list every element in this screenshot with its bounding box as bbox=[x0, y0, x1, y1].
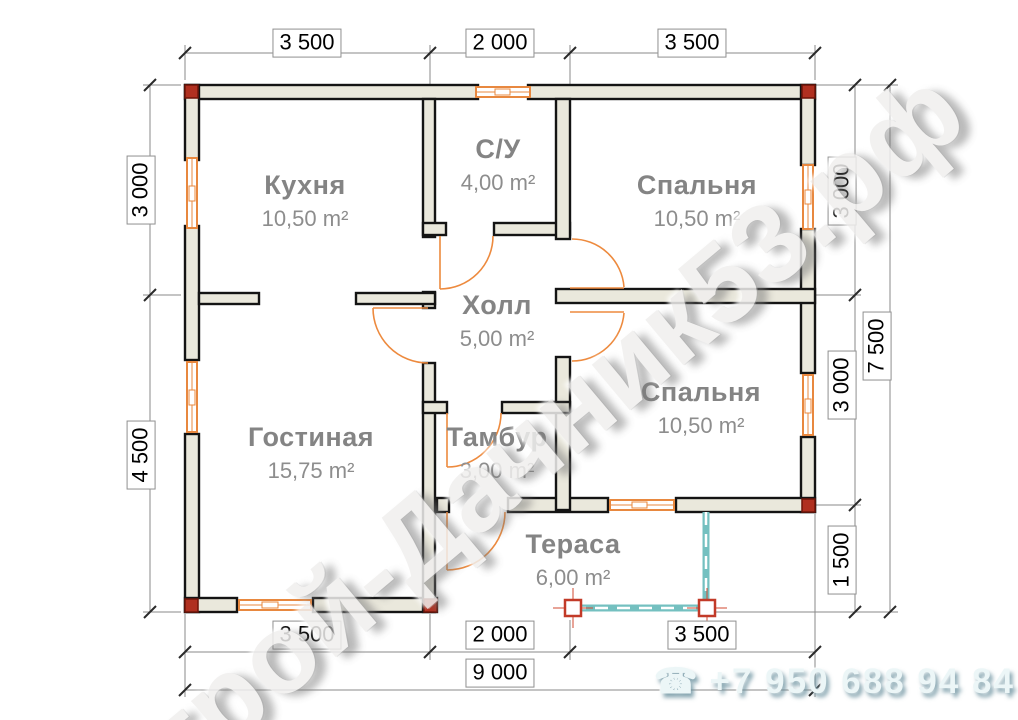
window-kitchen-left bbox=[187, 158, 197, 228]
window-bedroom-bottom-right bbox=[803, 375, 813, 435]
room-area: 10,50 m² bbox=[262, 206, 349, 232]
dim-bottom-3: 3 500 bbox=[667, 621, 736, 650]
window-living-bottom bbox=[239, 600, 311, 610]
room-label-bathroom: С/У 4,00 m² bbox=[461, 134, 536, 196]
dim-right-2: 3 000 bbox=[828, 350, 857, 419]
room-area: 5,00 m² bbox=[460, 326, 535, 352]
dim-bottom-2: 2 000 bbox=[465, 621, 534, 650]
room-name: Тераса bbox=[525, 529, 620, 560]
door-bedroom-bottom bbox=[570, 312, 624, 361]
phone-digits: +7 950 688 94 84 bbox=[710, 662, 1015, 701]
doors-group bbox=[373, 236, 624, 570]
room-label-kitchen: Кухня 10,50 m² bbox=[262, 170, 349, 232]
room-name: С/У bbox=[461, 134, 536, 165]
room-label-living: Гостиная 15,75 m² bbox=[248, 422, 374, 484]
room-area: 15,75 m² bbox=[248, 458, 374, 484]
dim-top-1: 3 500 bbox=[272, 29, 341, 58]
dim-bottom-total: 9 000 bbox=[465, 659, 534, 688]
room-label-terrace: Тераса 6,00 m² bbox=[525, 529, 620, 591]
room-area: 10,50 m² bbox=[641, 413, 761, 439]
dim-left-2: 4 500 bbox=[127, 420, 156, 489]
room-name: Гостиная bbox=[248, 422, 374, 453]
phone-icon: ☎ bbox=[654, 662, 700, 701]
dim-right-total: 7 500 bbox=[863, 311, 892, 380]
room-label-bedroom-bottom: Спальня 10,50 m² bbox=[641, 377, 761, 439]
door-terrace-entry bbox=[447, 512, 505, 570]
room-name: Спальня bbox=[641, 377, 761, 408]
room-name: Холл bbox=[460, 290, 535, 321]
room-name: Спальня bbox=[637, 170, 757, 201]
dim-right-1: 3 000 bbox=[828, 156, 857, 225]
window-bedroom-top-right bbox=[803, 165, 813, 229]
dim-bottom-1: 3 500 bbox=[272, 621, 341, 650]
dim-top-3: 3 500 bbox=[657, 29, 726, 58]
room-area: 10,50 m² bbox=[637, 206, 757, 232]
room-label-bedroom-top: Спальня 10,50 m² bbox=[637, 170, 757, 232]
room-area: 4,00 m² bbox=[461, 170, 536, 196]
window-living-left bbox=[187, 362, 197, 432]
phone-number: ☎+7 950 688 94 84 bbox=[654, 662, 1015, 702]
window-bedroom-terrace bbox=[610, 500, 674, 510]
room-area: 3,00 m² bbox=[447, 458, 548, 484]
room-area: 6,00 m² bbox=[525, 565, 620, 591]
room-label-hall: Холл 5,00 m² bbox=[460, 290, 535, 352]
door-bathroom bbox=[440, 236, 493, 289]
window-bathroom-top bbox=[476, 87, 530, 97]
door-living bbox=[373, 308, 428, 363]
dim-top-2: 2 000 bbox=[465, 29, 534, 58]
dim-left-1: 3 000 bbox=[127, 155, 156, 224]
door-bedroom-top bbox=[570, 239, 624, 288]
terrace-post bbox=[565, 600, 581, 616]
terrace-post bbox=[699, 600, 715, 616]
room-label-tambour: Тамбур 3,00 m² bbox=[447, 422, 548, 484]
room-name: Тамбур bbox=[447, 422, 548, 453]
floorplan-canvas: Кухня 10,50 m² С/У 4,00 m² Спальня 10,50… bbox=[0, 0, 1018, 720]
room-name: Кухня bbox=[262, 170, 349, 201]
dim-right-3: 1 500 bbox=[828, 525, 857, 594]
